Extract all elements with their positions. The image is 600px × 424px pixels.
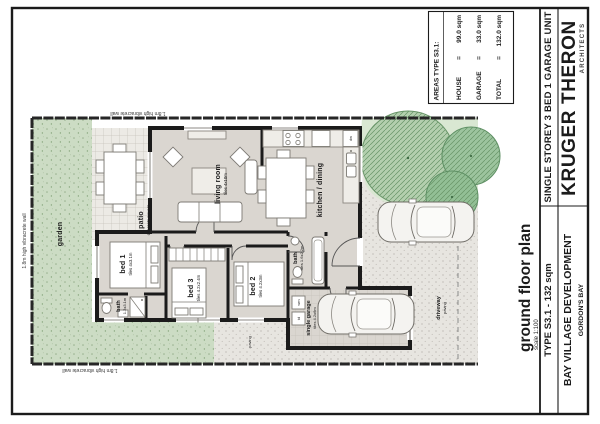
patio-label: patio	[138, 211, 145, 229]
patio-size: concrete pavers	[146, 205, 151, 236]
paving-strip-label: paving	[247, 336, 252, 348]
window-bed2-bottom	[238, 318, 264, 323]
bath1-size: 1.2x3.1m	[122, 297, 127, 314]
areas-table-header: AREAS TYPE S3.1:	[434, 42, 441, 101]
washing-machine-label: wm	[296, 299, 301, 306]
areas-table: AREAS TYPE S3.1: HOUSE = 99.0 sqm GARAGE…	[429, 12, 514, 104]
bed3-wardrobe	[169, 248, 225, 261]
bed1-size: tiles 4x3.1m	[128, 252, 133, 275]
areas-row-total-eq: =	[496, 56, 503, 60]
window-bed1-left	[95, 246, 100, 278]
bed2-label: bed 2	[250, 276, 257, 295]
bed3-label: bed 3	[188, 278, 195, 297]
front-door-opening	[357, 238, 363, 266]
sink	[347, 150, 357, 177]
unit-type-label: TYPE S3.1 - 132 sqm	[543, 263, 554, 356]
areas-row-total-value: 132.0 sqm	[496, 15, 503, 47]
areas-row-house-value: 99.0 sqm	[456, 15, 463, 43]
fridge	[312, 131, 330, 147]
project-type: SINGLE STOREY 3 BED 1 GARAGE UNIT	[543, 11, 554, 202]
sofa	[178, 202, 242, 222]
areas-row-house-eq: =	[456, 56, 463, 60]
garden-label: garden	[57, 222, 64, 247]
side-sofa	[245, 160, 257, 194]
firm-subtitle: ARCHITECTS	[580, 23, 586, 74]
dishwasher-label: dw	[348, 136, 353, 141]
firm-name: KRUGER THERON	[559, 20, 580, 196]
tv-unit	[188, 131, 226, 139]
kitchen-label: kitchen / dining	[317, 163, 324, 218]
toilet-1	[101, 298, 112, 314]
wall-left-label: 1.8m high vibracrete wall	[22, 213, 28, 268]
bath2-size: tiles 1.6x2.2m	[299, 245, 304, 270]
window-living-top	[184, 126, 212, 131]
development-location: GORDON'S BAY	[578, 283, 585, 336]
dining-table	[258, 150, 314, 226]
development-name: BAY VILLAGE DEVELOPMENT	[562, 233, 574, 386]
shower-1	[130, 297, 145, 317]
drawing-sheet: living room tiles 4x10m kitchen / dining…	[0, 0, 600, 424]
areas-row-total-label: TOTAL	[496, 79, 503, 100]
areas-row-garage-label: GARAGE	[476, 71, 483, 100]
tumble-dryer-label: td	[296, 317, 301, 320]
areas-row-house: HOUSE = 99.0 sqm	[456, 15, 463, 100]
bed3-size: tiles 4.2x2.4m	[196, 274, 201, 301]
patio-table	[104, 152, 136, 204]
wall-bottom-label: 1.8m high vibracrete wall	[62, 367, 117, 373]
wall-top-label: 1.8m high vibracrete wall	[110, 110, 165, 116]
car-on-driveway	[378, 199, 474, 245]
areas-row-total: TOTAL = 132.0 sqm	[496, 15, 503, 100]
living-label: living room	[215, 164, 222, 204]
basin-2	[291, 237, 299, 245]
areas-row-garage: GARAGE = 33.0 sqm	[476, 15, 483, 100]
areas-row-garage-value: 33.0 sqm	[476, 15, 483, 43]
car-in-garage	[318, 291, 414, 337]
patio-sliding-door	[148, 152, 153, 198]
areas-row-garage-eq: =	[476, 56, 483, 60]
driveway-size: paving	[442, 302, 447, 314]
living-size: tiles 4x10m	[223, 173, 228, 195]
window-bath1-bottom	[104, 318, 124, 323]
garage-size: tiles 4.2x6m	[312, 307, 317, 329]
bathtub	[312, 237, 324, 284]
bed2-size: tiles 4.2x3m	[258, 274, 263, 297]
bed1-label: bed 1	[120, 254, 127, 273]
drawing-title-text: ground floor plan	[517, 224, 534, 352]
floor-plan-svg: living room tiles 4x10m kitchen / dining…	[0, 0, 600, 424]
stove	[283, 131, 304, 147]
bed1-furniture	[110, 242, 160, 288]
areas-row-house-label: HOUSE	[456, 76, 463, 100]
